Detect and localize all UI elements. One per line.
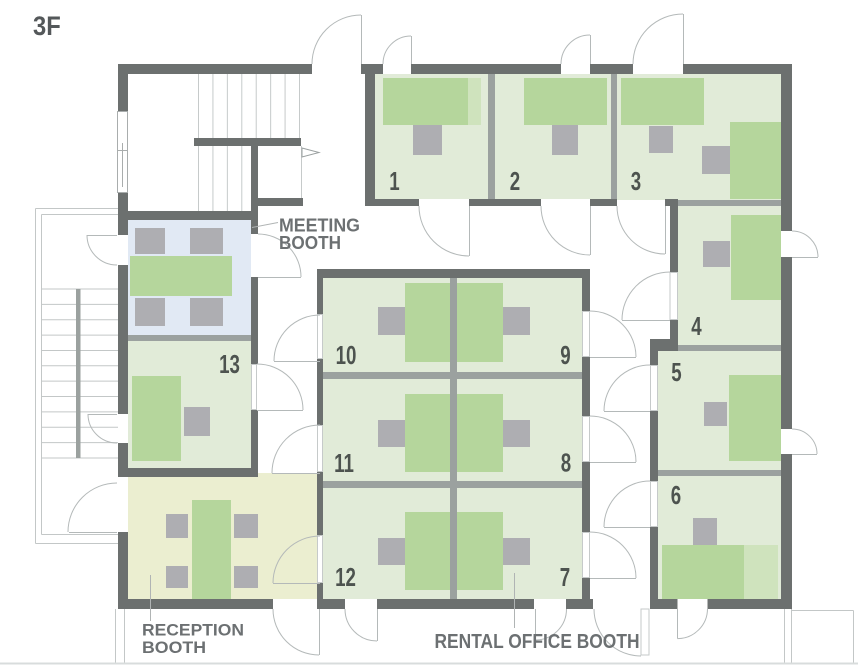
svg-text:3F: 3F [33, 12, 61, 42]
svg-text:3: 3 [631, 166, 641, 196]
svg-text:RECEPTION: RECEPTION [142, 621, 244, 640]
svg-text:4: 4 [691, 311, 702, 341]
svg-text:9: 9 [560, 340, 570, 370]
svg-text:6: 6 [671, 480, 681, 510]
svg-text:BOOTH: BOOTH [279, 233, 341, 253]
svg-text:12: 12 [335, 562, 356, 592]
svg-text:13: 13 [219, 349, 240, 379]
svg-text:10: 10 [336, 340, 357, 370]
svg-text:8: 8 [561, 447, 571, 477]
svg-text:2: 2 [510, 166, 520, 196]
svg-text:11: 11 [334, 448, 354, 478]
svg-text:1: 1 [389, 166, 399, 196]
svg-text:7: 7 [560, 562, 570, 592]
svg-text:RENTAL OFFICE BOOTH: RENTAL OFFICE BOOTH [435, 630, 640, 653]
svg-text:BOOTH: BOOTH [142, 638, 206, 657]
svg-text:5: 5 [671, 357, 681, 387]
